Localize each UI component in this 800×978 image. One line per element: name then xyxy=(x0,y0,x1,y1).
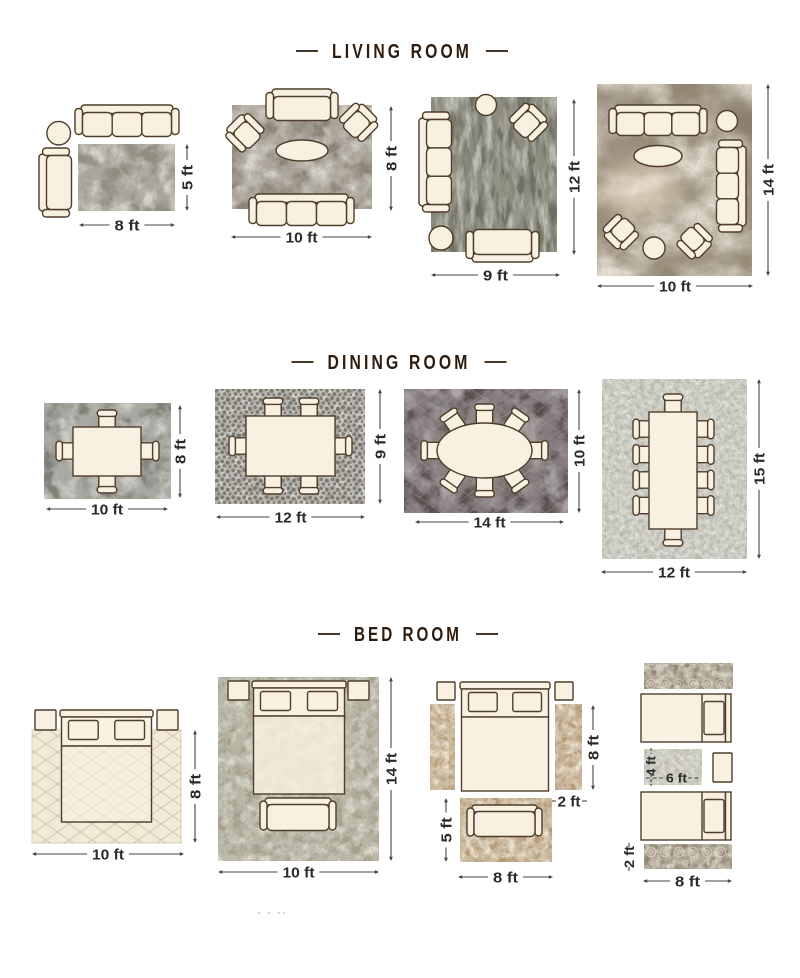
svg-text:5 ft: 5 ft xyxy=(179,165,196,190)
svg-text:12 ft: 12 ft xyxy=(275,509,307,526)
svg-text:8 ft: 8 ft xyxy=(675,873,700,890)
svg-text:15 ft: 15 ft xyxy=(751,453,768,485)
svg-text:14 ft: 14 ft xyxy=(760,164,777,196)
svg-text:LIVING ROOM: LIVING ROOM xyxy=(332,41,472,63)
svg-text:12 ft: 12 ft xyxy=(566,161,583,193)
svg-text:8 ft: 8 ft xyxy=(172,439,189,464)
svg-text:12 ft: 12 ft xyxy=(658,564,690,581)
svg-text:5 ft: 5 ft xyxy=(438,817,455,842)
svg-text:DINING ROOM: DINING ROOM xyxy=(328,352,471,374)
svg-text:2 ft: 2 ft xyxy=(621,846,637,868)
svg-text:14 ft: 14 ft xyxy=(474,514,506,531)
svg-text:14 ft: 14 ft xyxy=(383,753,400,785)
svg-text:8 ft: 8 ft xyxy=(187,774,204,799)
svg-text:10 ft: 10 ft xyxy=(283,864,315,881)
svg-text:8 ft: 8 ft xyxy=(115,217,140,234)
svg-text:10 ft: 10 ft xyxy=(659,278,691,295)
svg-text:10 ft: 10 ft xyxy=(91,501,123,518)
svg-text:8 ft: 8 ft xyxy=(493,869,518,886)
svg-text:9 ft: 9 ft xyxy=(483,267,508,284)
svg-text:8 ft: 8 ft xyxy=(383,146,400,171)
svg-text:10 ft: 10 ft xyxy=(571,435,588,467)
svg-text:6 ft: 6 ft xyxy=(666,771,688,786)
svg-text:2 ft: 2 ft xyxy=(558,794,581,810)
svg-text:BED ROOM: BED ROOM xyxy=(354,624,462,646)
svg-text:10 ft: 10 ft xyxy=(286,229,318,246)
svg-text:4 ft: 4 ft xyxy=(645,755,659,776)
svg-text:9 ft: 9 ft xyxy=(372,434,389,459)
svg-text:8 ft: 8 ft xyxy=(585,735,602,760)
svg-text:10 ft: 10 ft xyxy=(92,846,124,863)
